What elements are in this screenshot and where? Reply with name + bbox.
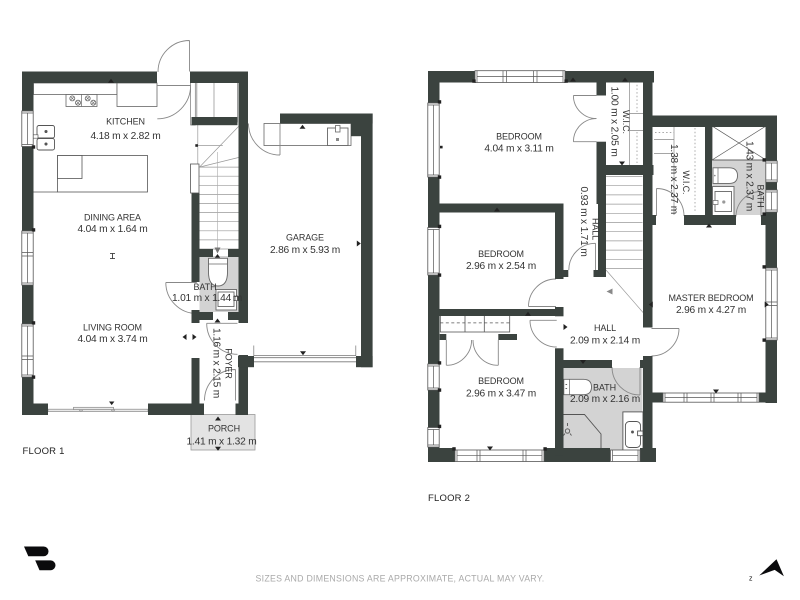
svg-text:DINING AREA: DINING AREA <box>84 213 141 223</box>
svg-text:FOYER: FOYER <box>224 348 234 379</box>
svg-text:0.93 m x 1.71 m: 0.93 m x 1.71 m <box>578 186 589 256</box>
svg-text:GARAGE: GARAGE <box>286 233 324 243</box>
svg-text:BEDROOM: BEDROOM <box>478 249 524 259</box>
svg-text:PORCH: PORCH <box>208 424 240 434</box>
svg-text:4.18 m x 2.82 m: 4.18 m x 2.82 m <box>90 131 160 142</box>
svg-text:2.09 m x 2.16 m: 2.09 m x 2.16 m <box>570 394 640 405</box>
svg-text:4.04 m x 3.74 m: 4.04 m x 3.74 m <box>77 334 147 345</box>
svg-text:HALL: HALL <box>594 323 616 333</box>
svg-text:W.I.C.: W.I.C. <box>621 110 631 134</box>
svg-text:2.96 m x 2.54 m: 2.96 m x 2.54 m <box>466 261 536 272</box>
svg-text:2.96 m x 4.27 m: 2.96 m x 4.27 m <box>676 305 746 316</box>
svg-text:BEDROOM: BEDROOM <box>496 132 542 142</box>
svg-text:2.96 m x 3.47 m: 2.96 m x 3.47 m <box>466 389 536 400</box>
svg-text:1.43 m x 2.37 m: 1.43 m x 2.37 m <box>744 141 755 211</box>
svg-text:z: z <box>749 576 753 583</box>
svg-text:FLOOR 2: FLOOR 2 <box>428 493 470 504</box>
svg-text:BATH: BATH <box>756 185 766 208</box>
svg-text:W.I.C.: W.I.C. <box>681 171 691 195</box>
svg-text:4.04 m x 1.64 m: 4.04 m x 1.64 m <box>77 224 147 235</box>
svg-text:BATH: BATH <box>194 282 217 292</box>
svg-text:LIVING ROOM: LIVING ROOM <box>83 323 142 333</box>
svg-text:2.86 m x 5.93 m: 2.86 m x 5.93 m <box>270 245 340 256</box>
svg-text:MASTER BEDROOM: MASTER BEDROOM <box>668 293 753 303</box>
svg-text:1.16 m x 2.15 m: 1.16 m x 2.15 m <box>211 328 222 398</box>
svg-text:1.38 m x 2.37 m: 1.38 m x 2.37 m <box>668 144 679 214</box>
svg-text:FLOOR 1: FLOOR 1 <box>23 446 65 457</box>
svg-text:4.04 m x 3.11 m: 4.04 m x 3.11 m <box>484 144 553 155</box>
svg-text:SIZES AND DIMENSIONS ARE APPRO: SIZES AND DIMENSIONS ARE APPROXIMATE, AC… <box>256 574 545 584</box>
svg-text:BATH: BATH <box>593 383 616 393</box>
svg-text:2.09 m x 2.14 m: 2.09 m x 2.14 m <box>570 336 640 347</box>
svg-text:BEDROOM: BEDROOM <box>478 376 524 386</box>
svg-text:KITCHEN: KITCHEN <box>106 117 145 127</box>
svg-text:HALL: HALL <box>591 218 601 240</box>
svg-text:1.00 m x 2.05 m: 1.00 m x 2.05 m <box>609 86 620 156</box>
svg-text:1.41 m x 1.32 m: 1.41 m x 1.32 m <box>186 437 256 448</box>
svg-text:1.01 m x 1.44 m: 1.01 m x 1.44 m <box>172 293 242 304</box>
